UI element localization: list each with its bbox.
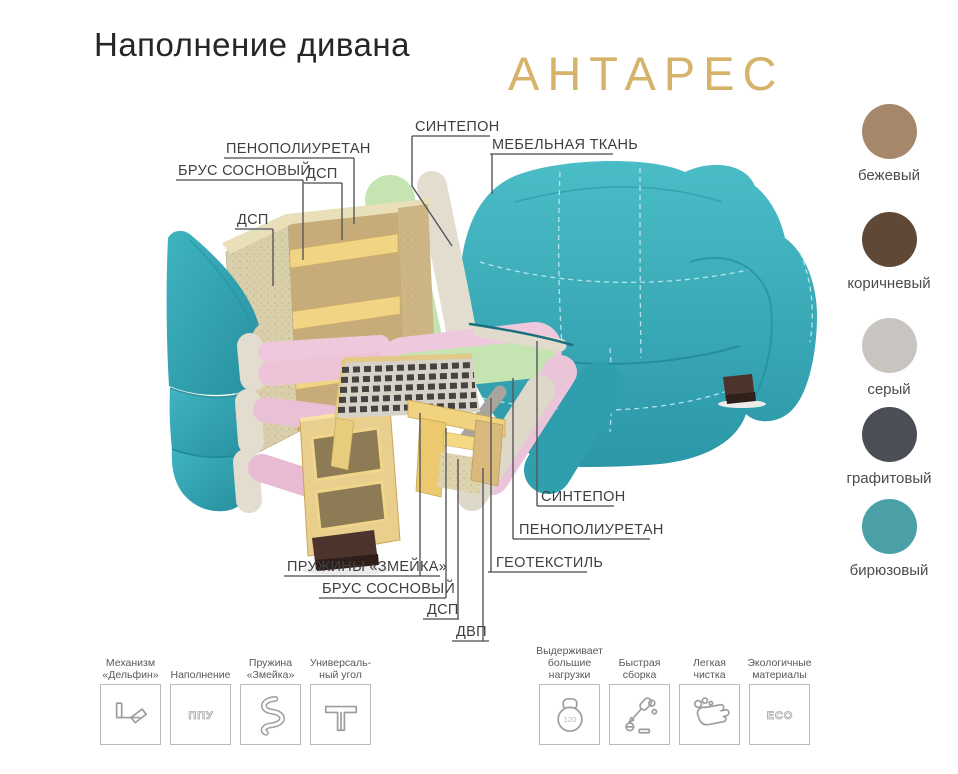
label-penopoliuretan-seat: ПЕНОПОЛИУРЕТАН xyxy=(519,522,664,538)
ppu-foam-icon: ППУ xyxy=(179,693,223,737)
feature-caption: Легкая чистка xyxy=(679,645,740,681)
swatch-label: коричневый xyxy=(830,275,948,292)
feature-caption: Пружина «Змейка» xyxy=(247,645,295,681)
label-sintepon-seat: СИНТЕПОН xyxy=(541,489,625,505)
feature-box xyxy=(609,684,670,745)
label-penopoliuretan-top: ПЕНОПОЛИУРЕТАН xyxy=(226,141,371,157)
label-pruzhiny-zmeyka: ПРУЖИНЫ «ЗМЕЙКА» xyxy=(287,557,447,575)
feature-caption: Наполнение xyxy=(171,645,231,681)
svg-text:ППУ: ППУ xyxy=(188,710,213,722)
quick-assembly-icon xyxy=(618,693,662,737)
feature-box: ECO xyxy=(749,684,810,745)
label-brus-sosnovy-bottom: БРУС СОСНОВЫЙ xyxy=(322,579,455,597)
feature-spring: Пружина «Змейка» xyxy=(240,645,301,745)
label-dsp-left: ДСП xyxy=(237,212,269,228)
color-swatch-beige: бежевый xyxy=(830,104,948,184)
feature-caption: Экологичные материалы xyxy=(747,645,811,681)
arm-sintepon-cap-1 xyxy=(250,346,253,378)
feature-box xyxy=(679,684,740,745)
swatch-label: серый xyxy=(830,381,948,398)
feature-box xyxy=(310,684,371,745)
easy-cleaning-icon xyxy=(688,693,732,737)
feature-mechanism: Механизм «Дельфин» xyxy=(100,645,161,745)
color-swatch-gray: серый xyxy=(830,318,948,398)
feature-group-left: Механизм «Дельфин» Наполнение ППУ Пружин… xyxy=(100,645,371,745)
swatch-circle xyxy=(862,407,917,462)
label-geotekstil: ГЕОТЕКСТИЛЬ xyxy=(496,555,603,571)
color-swatch-brown: коричневый xyxy=(830,212,948,292)
feature-box xyxy=(100,684,161,745)
feature-caption: Универсаль- ный угол xyxy=(310,645,371,681)
color-swatch-graphite: графитовый xyxy=(830,407,948,487)
feature-quick-assembly: Быстрая сборка xyxy=(609,645,670,745)
swatch-label: бежевый xyxy=(830,167,948,184)
swatch-label: бирюзовый xyxy=(830,562,948,579)
swatch-circle xyxy=(862,318,917,373)
label-dvp: ДВП xyxy=(456,624,487,640)
infographic-page: Наполнение дивана АНТАРЕС xyxy=(0,0,958,774)
label-dsp-top: ДСП xyxy=(306,166,338,182)
feature-group-right: Выдерживает большие нагрузки 120 Быстрая… xyxy=(539,645,810,745)
feature-box: 120 xyxy=(539,684,600,745)
feature-eco-materials: Экологичные материалы ECO xyxy=(749,645,810,745)
sofa-foot-right xyxy=(723,374,756,404)
swatch-circle xyxy=(862,212,917,267)
feature-load-capacity: Выдерживает большие нагрузки 120 xyxy=(539,645,600,745)
arm-sintepon-cap-2 xyxy=(248,402,251,442)
label-brus-sosnovy-top: БРУС СОСНОВЫЙ xyxy=(178,161,311,179)
feature-universal-corner: Универсаль- ный угол xyxy=(310,645,371,745)
eco-icon: ECO xyxy=(758,693,802,737)
feature-easy-cleaning: Легкая чистка xyxy=(679,645,740,745)
kettlebell-icon: 120 xyxy=(548,693,592,737)
swatch-circle xyxy=(862,499,917,554)
label-mebelnaya-tkan: МЕБЕЛЬНАЯ ТКАНЬ xyxy=(492,137,638,153)
dvp-panel xyxy=(471,420,503,486)
feature-caption: Выдерживает большие нагрузки xyxy=(536,645,603,681)
feature-box xyxy=(240,684,301,745)
color-swatch-turquoise: бирюзовый xyxy=(830,499,948,579)
arm-pink-slab-1a xyxy=(268,345,380,352)
svg-text:120: 120 xyxy=(563,714,576,723)
sofa-mechanism-icon xyxy=(109,693,153,737)
swatch-circle xyxy=(862,104,917,159)
label-sintepon-top: СИНТЕПОН xyxy=(415,119,499,135)
snake-spring-icon xyxy=(249,693,293,737)
feature-caption: Быстрая сборка xyxy=(619,645,661,681)
svg-text:ECO: ECO xyxy=(766,710,792,722)
feature-box: ППУ xyxy=(170,684,231,745)
feature-caption: Механизм «Дельфин» xyxy=(102,645,158,681)
label-dsp-bottom: ДСП xyxy=(427,602,459,618)
universal-corner-icon xyxy=(319,693,363,737)
feature-filling: Наполнение ППУ xyxy=(170,645,231,745)
swatch-label: графитовый xyxy=(830,470,948,487)
